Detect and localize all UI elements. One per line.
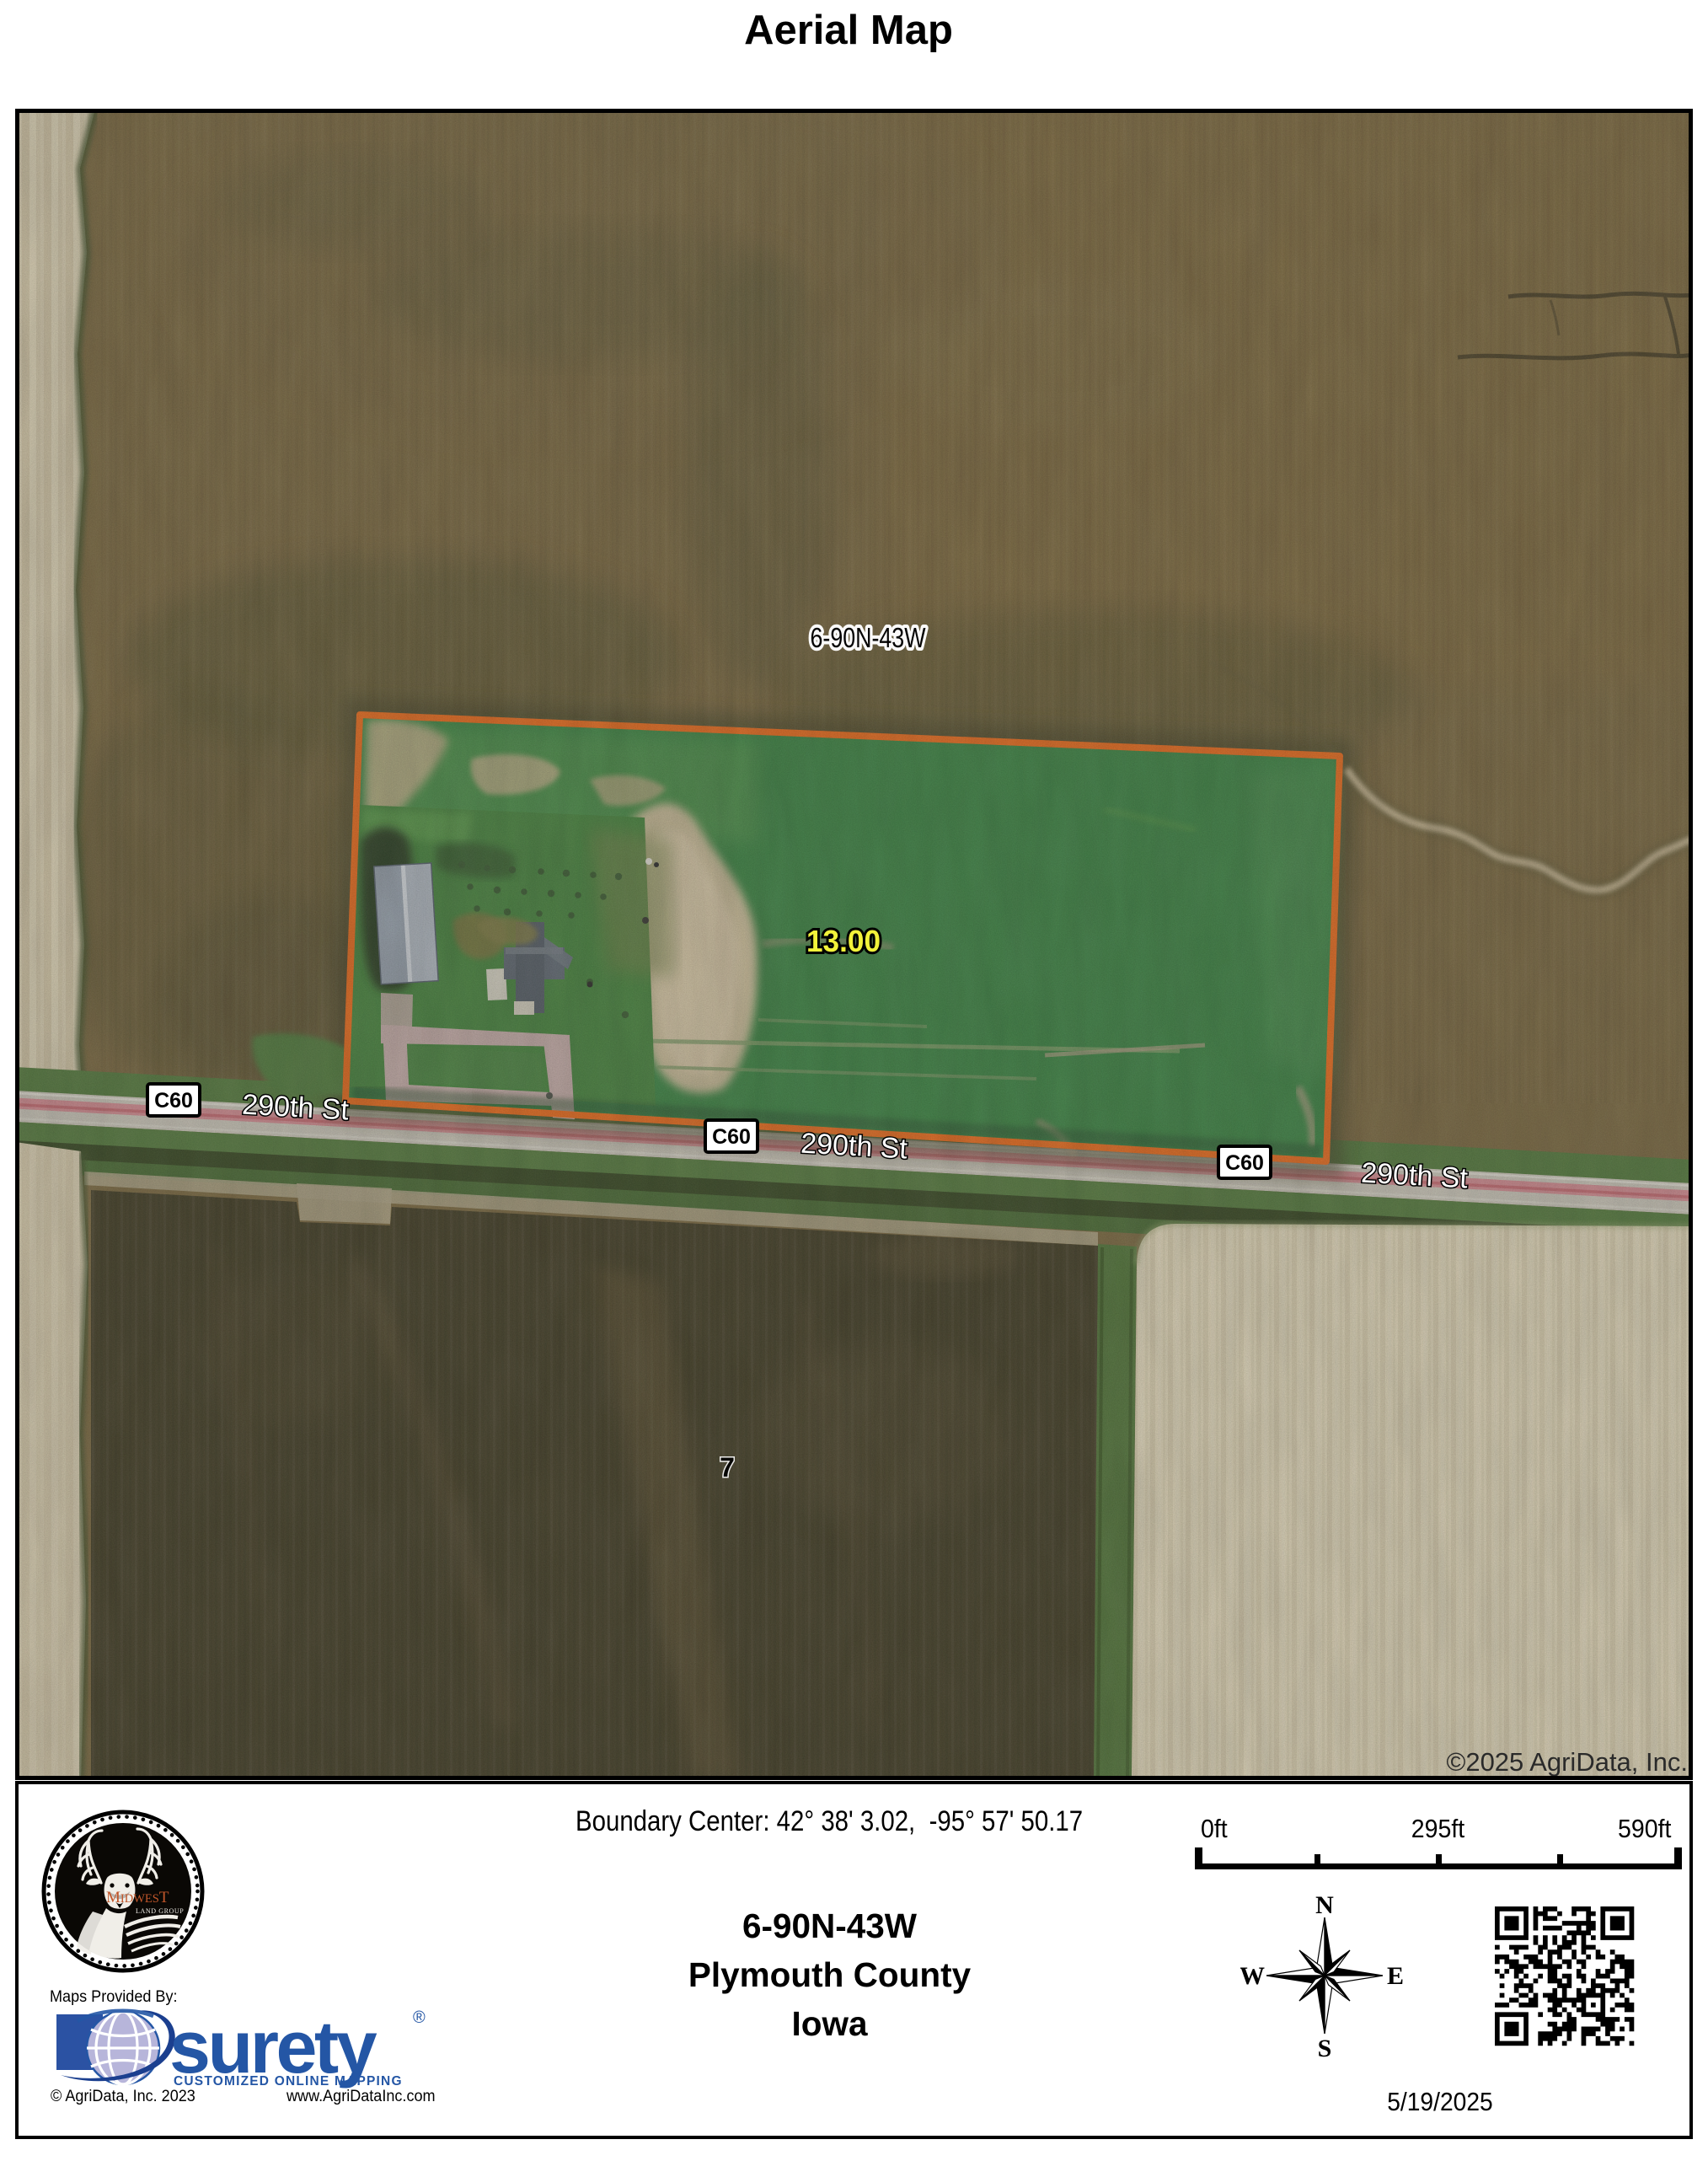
svg-text:E: E xyxy=(1387,1962,1404,1990)
svg-text:CUSTOMIZED ONLINE MAPPING: CUSTOMIZED ONLINE MAPPING xyxy=(174,2074,403,2089)
svg-text:W: W xyxy=(1240,1962,1265,1990)
svg-text:N: N xyxy=(1315,1891,1334,1919)
svg-text:S: S xyxy=(1318,2035,1332,2060)
